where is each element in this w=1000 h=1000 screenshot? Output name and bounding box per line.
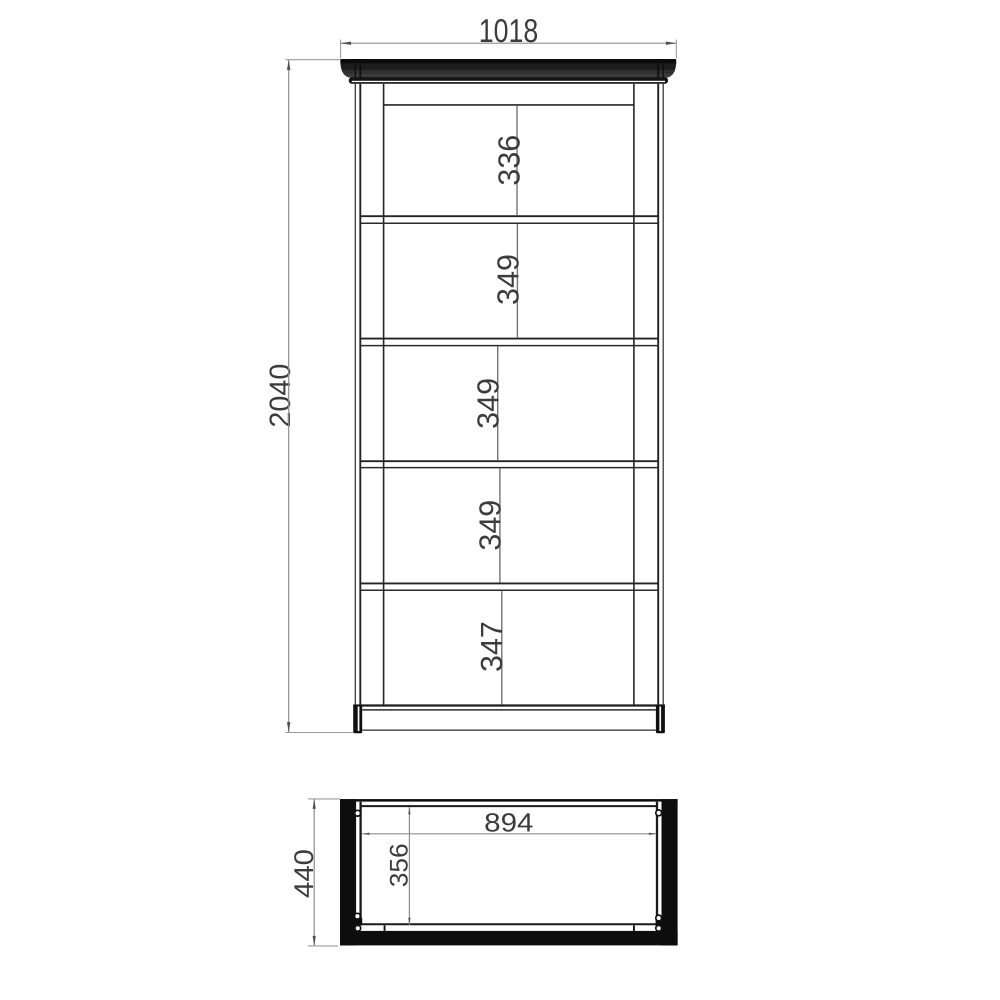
svg-text:349: 349: [474, 500, 508, 551]
svg-text:356: 356: [386, 843, 414, 887]
svg-text:336: 336: [492, 135, 526, 186]
svg-text:347: 347: [475, 621, 509, 672]
svg-text:349: 349: [471, 378, 505, 429]
svg-text:349: 349: [492, 254, 526, 305]
svg-text:894: 894: [484, 808, 533, 838]
svg-text:2040: 2040: [264, 364, 297, 428]
